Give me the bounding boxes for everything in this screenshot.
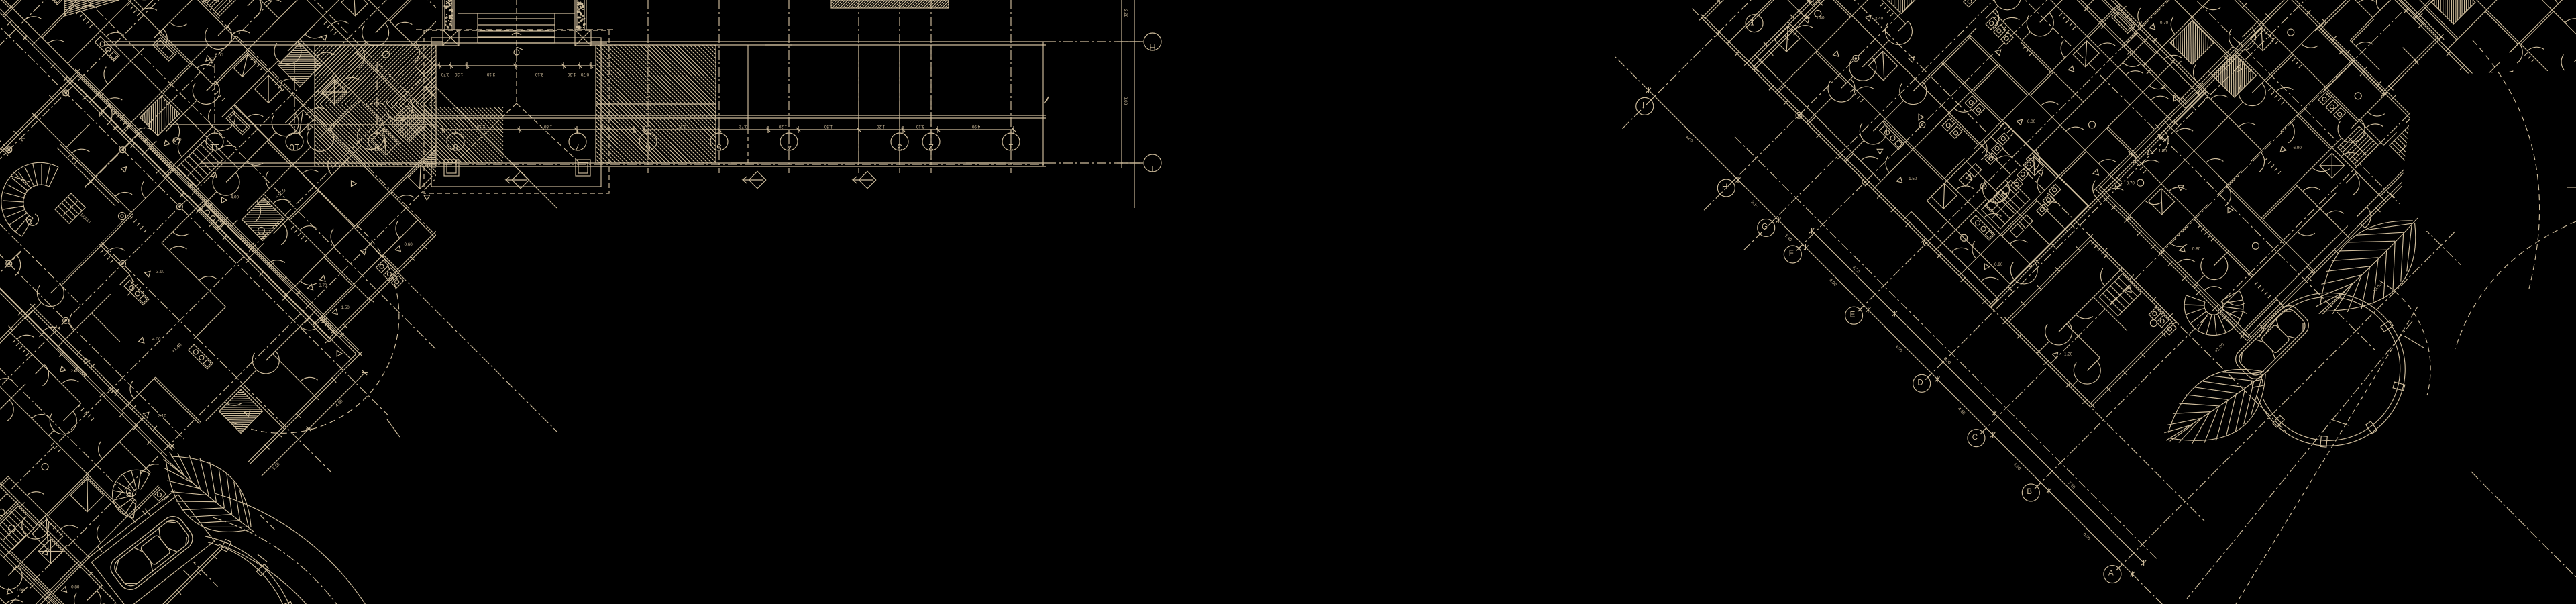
svg-text:G: G — [1762, 223, 1768, 232]
svg-text:0.70: 0.70 — [441, 72, 449, 77]
svg-text:I: I — [1151, 164, 1154, 174]
svg-text:C: C — [1972, 434, 1978, 442]
svg-text:3.10: 3.10 — [916, 124, 924, 129]
svg-text:6.00: 6.00 — [2294, 146, 2302, 150]
svg-text:4.90: 4.90 — [971, 124, 980, 129]
svg-text:1.20: 1.20 — [876, 124, 885, 129]
svg-text:2.28: 2.28 — [1123, 9, 1128, 18]
svg-text:6: 6 — [645, 142, 651, 152]
svg-text:3.70: 3.70 — [319, 283, 327, 288]
svg-text:1.50: 1.50 — [341, 305, 350, 310]
svg-text:2.40: 2.40 — [70, 369, 79, 374]
svg-text:9: 9 — [374, 142, 380, 152]
svg-text:0.80: 0.80 — [71, 585, 80, 590]
svg-text:7: 7 — [575, 142, 580, 152]
svg-text:1.20: 1.20 — [2064, 352, 2073, 357]
svg-text:1.20: 1.20 — [567, 72, 576, 77]
svg-text:3: 3 — [897, 142, 902, 152]
svg-text:0.80: 0.80 — [2192, 247, 2201, 252]
svg-text:2.40: 2.40 — [1875, 17, 1884, 21]
svg-text:H: H — [1722, 183, 1727, 191]
svg-text:0.72: 0.72 — [739, 124, 747, 129]
svg-text:4: 4 — [786, 142, 792, 152]
svg-text:2.40: 2.40 — [600, 124, 609, 129]
svg-text:10: 10 — [289, 142, 300, 152]
svg-text:1.50: 1.50 — [824, 124, 833, 129]
svg-text:H: H — [1149, 42, 1156, 52]
svg-text:1.20: 1.20 — [454, 72, 463, 77]
svg-text:5: 5 — [716, 142, 722, 152]
svg-text:I: I — [1642, 102, 1644, 110]
svg-text:0.90: 0.90 — [1994, 262, 2003, 267]
svg-text:0.60: 0.60 — [405, 242, 413, 247]
svg-text:F: F — [1789, 250, 1794, 258]
svg-text:1.50: 1.50 — [1909, 177, 1917, 181]
svg-text:1.20: 1.20 — [778, 124, 787, 129]
svg-text:3.70: 3.70 — [2127, 181, 2135, 185]
svg-text:3.70: 3.70 — [677, 124, 686, 129]
svg-text:B: B — [2027, 488, 2032, 496]
svg-text:1: 1 — [1008, 142, 1014, 152]
svg-text:2.10: 2.10 — [158, 413, 167, 418]
svg-text:2.10: 2.10 — [476, 124, 485, 129]
svg-text:A: A — [2108, 570, 2114, 578]
svg-text:E: E — [1850, 311, 1856, 319]
svg-text:0.70: 0.70 — [580, 72, 589, 77]
svg-text:11: 11 — [210, 142, 219, 152]
svg-text:1.80: 1.80 — [543, 124, 552, 129]
svg-text:8.08: 8.08 — [1123, 97, 1128, 105]
svg-text:8: 8 — [453, 142, 458, 152]
svg-text:0.70: 0.70 — [2160, 21, 2169, 26]
svg-text:1.00: 1.00 — [16, 588, 25, 593]
svg-text:2.10: 2.10 — [156, 269, 165, 274]
svg-text:1.50: 1.50 — [2159, 148, 2167, 153]
svg-text:6.00: 6.00 — [2027, 119, 2036, 124]
svg-text:2: 2 — [928, 142, 934, 152]
svg-text:D: D — [1917, 379, 1923, 387]
svg-text:3.10: 3.10 — [486, 72, 495, 77]
svg-text:4.00: 4.00 — [231, 195, 239, 199]
svg-text:3.10: 3.10 — [535, 72, 543, 77]
